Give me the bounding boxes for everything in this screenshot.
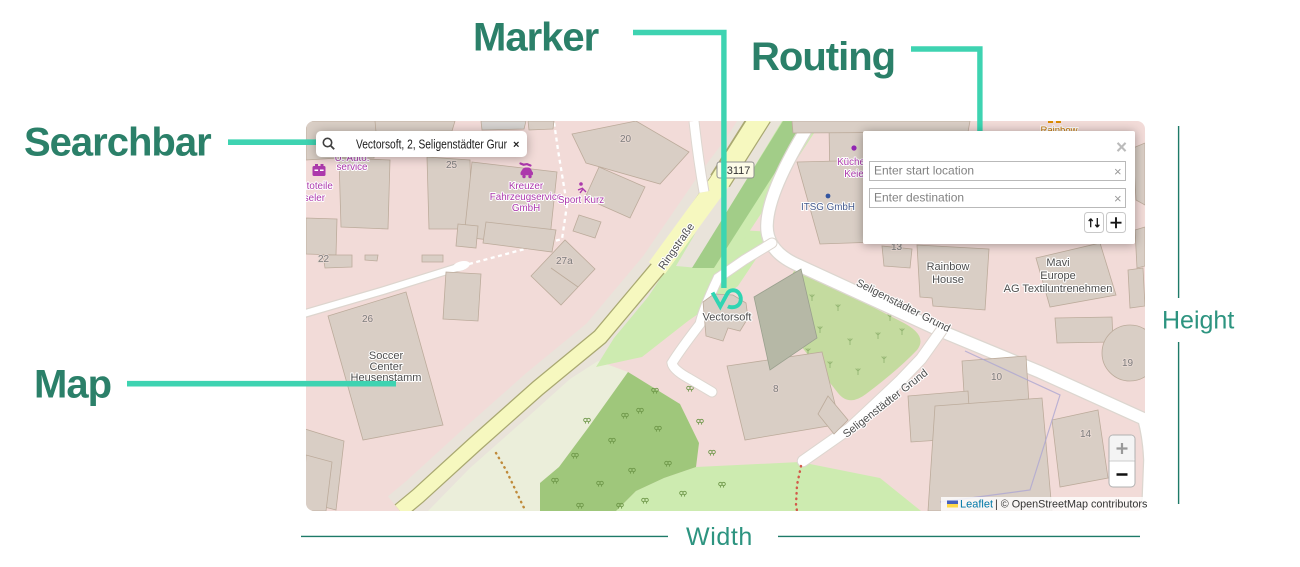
svg-text:Keie: Keie [844,169,864,180]
svg-text:20: 20 [620,134,632,145]
svg-text:Marker: Marker [473,15,599,59]
svg-text:Europe: Europe [1040,270,1075,282]
svg-text:14: 14 [1080,429,1092,440]
svg-text:×: × [513,139,519,151]
svg-text:Map: Map [34,363,111,407]
svg-text:Enter start location: Enter start location [874,164,974,178]
svg-text:25: 25 [446,160,458,171]
svg-text:19: 19 [1122,358,1134,369]
svg-text:utoteile: utoteile [301,181,333,192]
svg-text:27a: 27a [556,256,573,267]
svg-text:22: 22 [318,254,330,265]
svg-text:ITSG GmbH: ITSG GmbH [801,202,855,213]
svg-text:Mavi: Mavi [1046,257,1069,269]
svg-text:Vectorsoft, 2, Seligenstädter: Vectorsoft, 2, Seligenstädter Grur [356,137,508,152]
svg-text:Fahrzeugservice: Fahrzeugservice [490,192,563,203]
svg-text:Leaflet: Leaflet [960,499,993,511]
svg-text:service: service [336,162,368,173]
svg-text:×: × [1114,164,1122,179]
svg-text:Routing: Routing [751,35,895,79]
svg-text:Kreuzer: Kreuzer [509,181,544,192]
svg-text:Enter destination: Enter destination [874,191,964,205]
svg-text:Vectorsoft: Vectorsoft [703,312,752,324]
svg-text:26: 26 [362,314,374,325]
svg-text:GmbH: GmbH [512,203,540,214]
svg-text:8: 8 [773,384,779,395]
svg-text:Width: Width [686,523,753,551]
svg-text:Height: Height [1162,307,1234,335]
svg-text:Rainbow: Rainbow [927,261,970,273]
svg-text:10: 10 [991,372,1003,383]
svg-text:×: × [1114,191,1122,206]
svg-text:×: × [1116,138,1127,159]
svg-text:Küche: Küche [837,157,865,168]
svg-text:Sport Kurz: Sport Kurz [558,195,604,206]
svg-text:| © OpenStreetMap contributors: | © OpenStreetMap contributors [995,499,1148,511]
svg-text:House: House [932,274,964,286]
svg-text:Searchbar: Searchbar [24,121,211,165]
svg-text:AG Textiluntrenehmen: AG Textiluntrenehmen [1004,283,1113,295]
